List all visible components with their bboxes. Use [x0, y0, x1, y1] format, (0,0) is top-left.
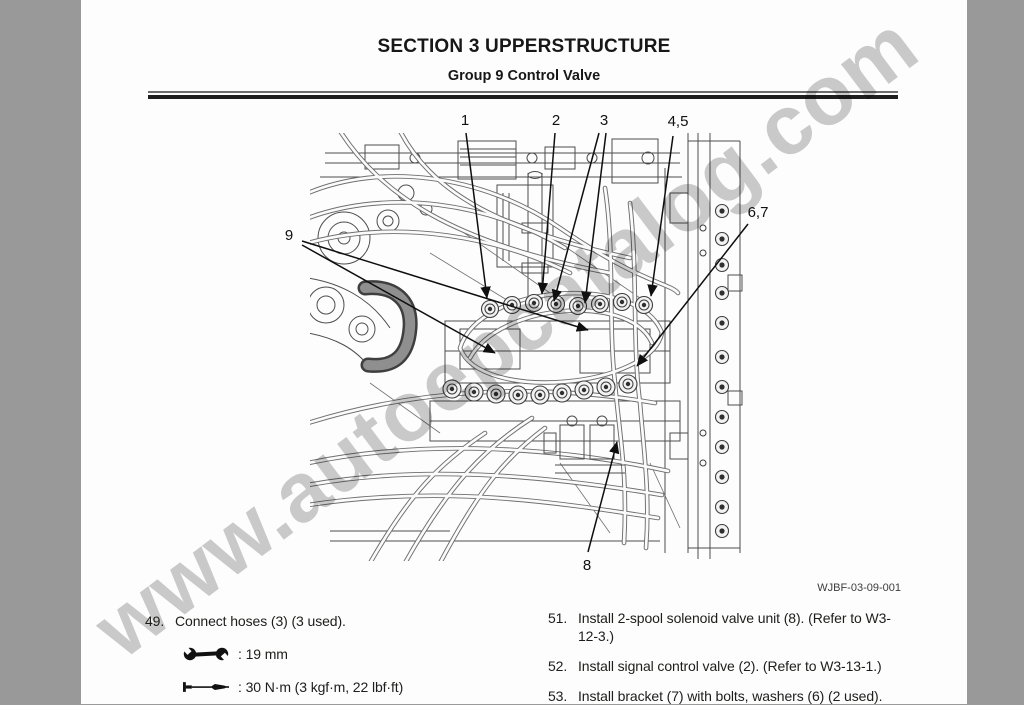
wrench-icon	[183, 646, 229, 662]
callout-label-4-5: 4,5	[668, 113, 689, 130]
callout-label-8: 8	[583, 557, 591, 574]
wrench-size-value: : 19 mm	[238, 645, 288, 663]
hose-fittings-row-lower	[443, 375, 637, 404]
step-text: Install signal control valve (2). (Refer…	[578, 657, 896, 675]
manual-viewer-canvas: { "header": { "section_title": "SECTION …	[0, 0, 1024, 704]
figure-reference-code: WJBF-03-09-001	[817, 582, 901, 594]
divider-thick-line	[148, 95, 898, 99]
step-51: 51. Install 2-spool solenoid valve unit …	[548, 609, 896, 645]
torque-spec-value: : 30 N·m (3 kgf·m, 22 lbf·ft)	[238, 678, 403, 696]
valve-body-lines	[330, 172, 680, 542]
tool-spec-wrench: : 19 mm	[183, 645, 517, 663]
step-number: 53.	[548, 687, 578, 705]
steps-column-right: 51. Install 2-spool solenoid valve unit …	[548, 609, 896, 705]
step-number: 49.	[145, 612, 175, 630]
solenoid-valve-unit	[544, 416, 625, 473]
header-divider	[148, 91, 898, 99]
torque-wrench-icon	[183, 680, 229, 694]
page-title: SECTION 3 UPPERSTRUCTURE	[81, 36, 967, 58]
step-text: Connect hoses (3) (3 used).	[175, 612, 517, 630]
step-number: 52.	[548, 657, 578, 675]
manual-page: SECTION 3 UPPERSTRUCTURE Group 9 Control…	[81, 0, 967, 704]
divider-thin-line	[148, 91, 898, 93]
step-49: 49. Connect hoses (3) (3 used).	[145, 612, 517, 630]
panel-bolts	[700, 205, 729, 538]
control-valve-diagram	[310, 133, 747, 561]
step-text: Install bracket (7) with bolts, washers …	[578, 687, 896, 705]
hose-fittings-row-upper	[482, 294, 653, 318]
callout-label-3: 3	[600, 112, 608, 129]
callout-label-1: 1	[461, 112, 469, 129]
tool-spec-torque: : 30 N·m (3 kgf·m, 22 lbf·ft)	[183, 678, 517, 696]
callout-label-2: 2	[552, 112, 560, 129]
step-number: 51.	[548, 609, 578, 627]
mounting-panel-lines	[665, 133, 742, 559]
steps-column-left: 49. Connect hoses (3) (3 used). : 19 mm	[145, 612, 517, 696]
step-53: 53. Install bracket (7) with bolts, wash…	[548, 687, 896, 705]
group-subtitle: Group 9 Control Valve	[81, 68, 967, 84]
step-52: 52. Install signal control valve (2). (R…	[548, 657, 896, 675]
step-text: Install 2-spool solenoid valve unit (8).…	[578, 609, 896, 645]
callout-label-9: 9	[285, 227, 293, 244]
callout-label-6-7: 6,7	[748, 204, 769, 221]
